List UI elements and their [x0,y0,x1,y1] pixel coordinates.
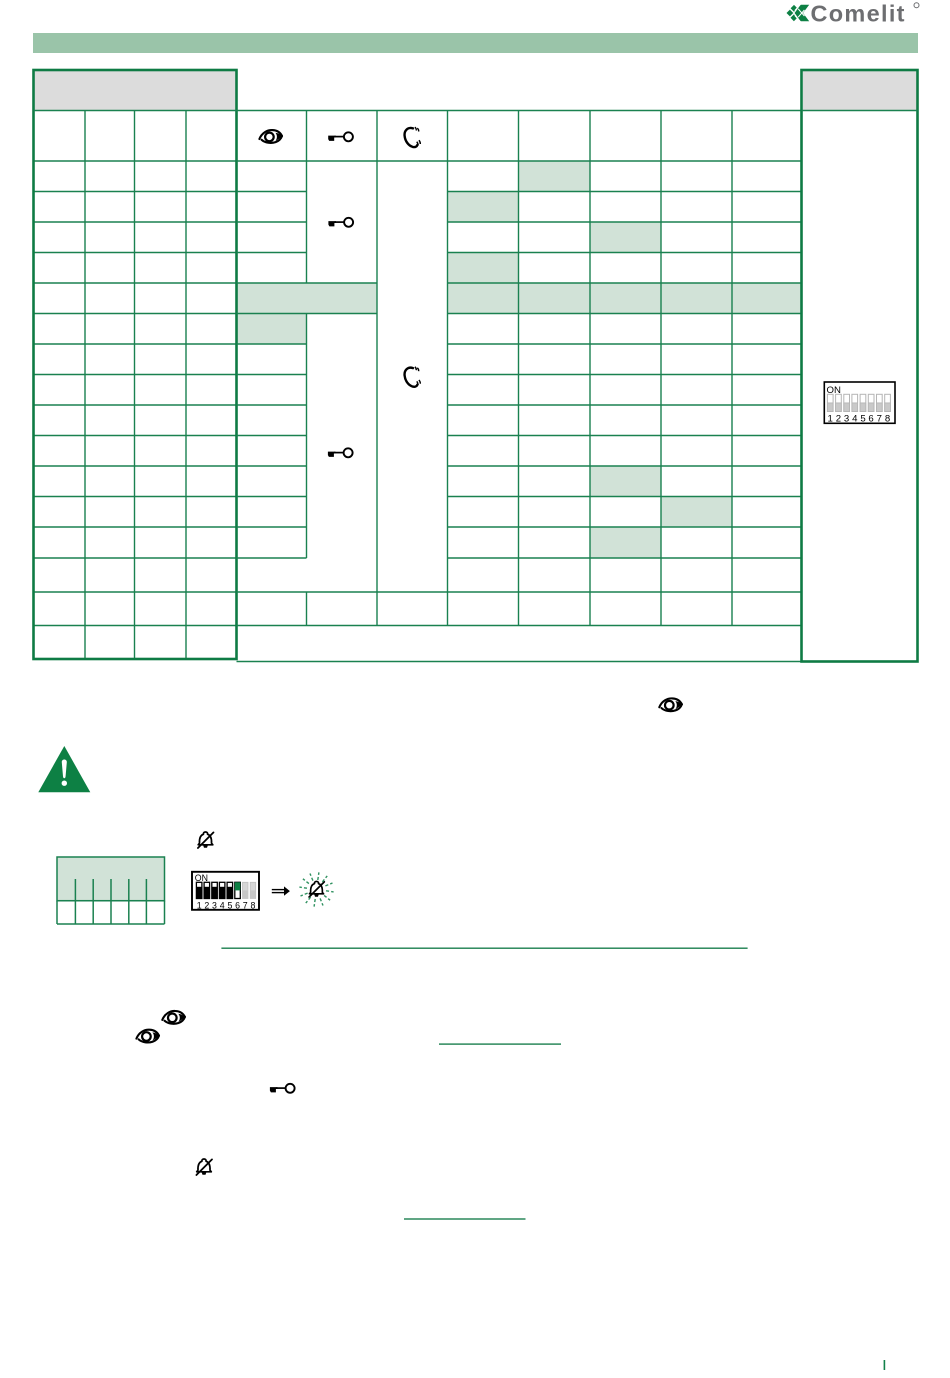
svg-text:2: 2 [836,414,841,425]
svg-text:6: 6 [868,414,873,425]
svg-text:5: 5 [227,901,232,911]
svg-text:1: 1 [828,414,833,425]
svg-text:7: 7 [243,901,248,911]
svg-text:8: 8 [250,901,255,911]
svg-text:5: 5 [860,414,865,425]
svg-text:4: 4 [852,414,858,425]
svg-text:6: 6 [235,901,240,911]
svg-text:3: 3 [844,414,849,425]
svg-text:1: 1 [197,901,202,911]
svg-text:3: 3 [212,901,217,911]
svg-text:8: 8 [885,414,890,425]
svg-text:7: 7 [877,414,882,425]
svg-text:2: 2 [204,901,209,911]
svg-text:Comelit: Comelit [811,0,906,26]
svg-text:4: 4 [220,901,225,911]
